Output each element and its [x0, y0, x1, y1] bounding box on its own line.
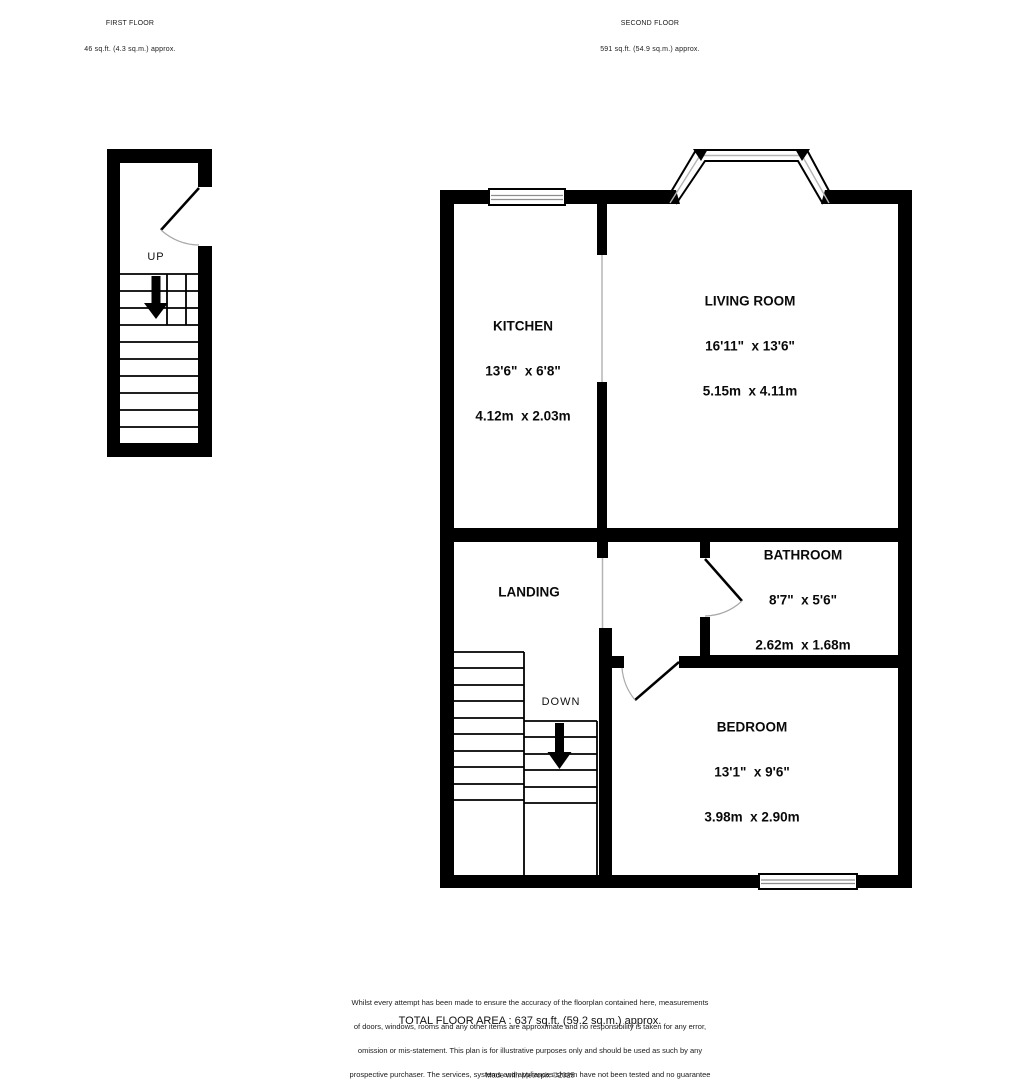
bathroom-name: BATHROOM	[755, 548, 850, 563]
sf-wall-bottom-a	[440, 875, 759, 888]
living-room-name: LIVING ROOM	[703, 294, 798, 309]
bedroom-dims-imperial: 13'1" x 9'6"	[704, 765, 799, 780]
sf-bedroom-door-jamb	[612, 656, 624, 668]
landing-label-block: LANDING	[498, 555, 560, 630]
ff-wall-right-upper	[198, 149, 212, 187]
bedroom-window	[759, 874, 857, 889]
first-floor-area: 46 sq.ft. (4.3 sq.m.) approx.	[84, 46, 175, 55]
second-floor-stairs	[454, 652, 597, 875]
living-room-dims-imperial: 16'11" x 13'6"	[703, 339, 798, 354]
sf-bathroom-wall-left-lower	[700, 617, 710, 668]
second-floor-title: SECOND FLOOR	[600, 20, 700, 29]
floorplan-page: FIRST FLOOR 46 sq.ft. (4.3 sq.m.) approx…	[0, 0, 1018, 1080]
ff-wall-right-lower	[198, 246, 212, 457]
sf-divider-upper	[597, 204, 607, 255]
disclaimer-line: of doors, windows, rooms and any other i…	[350, 1023, 711, 1031]
bathroom-dims-imperial: 8'7" x 5'6"	[755, 593, 850, 608]
sf-wall-top-a	[440, 190, 489, 204]
first-floor-plan	[107, 149, 212, 457]
down-label: DOWN	[542, 696, 581, 708]
first-floor-title: FIRST FLOOR	[84, 20, 175, 29]
sf-wall-top-c	[828, 190, 912, 204]
up-arrow-icon	[144, 276, 168, 319]
bedroom-door	[622, 662, 679, 700]
living-room-label-block: LIVING ROOM 16'11" x 13'6" 5.15m x 4.11m	[703, 264, 798, 429]
sf-wall-door-to-bathroom	[679, 656, 700, 668]
ff-wall-top	[107, 149, 212, 163]
up-label: UP	[147, 251, 164, 263]
bathroom-dims-metric: 2.62m x 1.68m	[755, 638, 850, 653]
kitchen-window	[489, 189, 565, 205]
second-floor-area: 591 sq.ft. (54.9 sq.m.) approx.	[600, 46, 700, 55]
second-floor-title-block: SECOND FLOOR 591 sq.ft. (54.9 sq.m.) app…	[600, 3, 700, 71]
disclaimer-block: Whilst every attempt has been made to en…	[350, 983, 711, 1080]
sf-divider-lower	[597, 382, 607, 528]
sf-bedroom-wall-left	[599, 628, 612, 875]
sf-wall-bottom-b	[857, 875, 912, 888]
metropix-credit: Made with Metropix ©2025	[485, 1071, 574, 1080]
landing-name: LANDING	[498, 585, 560, 600]
kitchen-label-block: KITCHEN 13'6" x 6'8" 4.12m x 2.03m	[475, 289, 570, 454]
sf-hall-stub	[597, 542, 608, 558]
first-floor-title-block: FIRST FLOOR 46 sq.ft. (4.3 sq.m.) approx…	[84, 3, 175, 71]
bedroom-label-block: BEDROOM 13'1" x 9'6" 3.98m x 2.90m	[704, 690, 799, 855]
disclaimer-line: omission or mis-statement. This plan is …	[350, 1047, 711, 1055]
bathroom-door	[705, 559, 742, 616]
floorplan-drawing	[0, 0, 1018, 1080]
kitchen-dims-imperial: 13'6" x 6'8"	[475, 364, 570, 379]
bedroom-name: BEDROOM	[704, 720, 799, 735]
down-arrow-icon	[548, 723, 572, 769]
bathroom-label-block: BATHROOM 8'7" x 5'6" 2.62m x 1.68m	[755, 518, 850, 683]
kitchen-name: KITCHEN	[475, 319, 570, 334]
ff-wall-bottom	[107, 443, 212, 457]
bedroom-dims-metric: 3.98m x 2.90m	[704, 810, 799, 825]
living-room-dims-metric: 5.15m x 4.11m	[703, 384, 798, 399]
sf-wall-top-b	[565, 190, 674, 204]
sf-bathroom-wall-left-upper	[700, 542, 710, 558]
kitchen-dims-metric: 4.12m x 2.03m	[475, 409, 570, 424]
disclaimer-line: Whilst every attempt has been made to en…	[350, 999, 711, 1007]
bay-window	[665, 149, 835, 204]
ff-wall-left	[107, 149, 120, 457]
first-floor-entry-door	[161, 188, 199, 245]
